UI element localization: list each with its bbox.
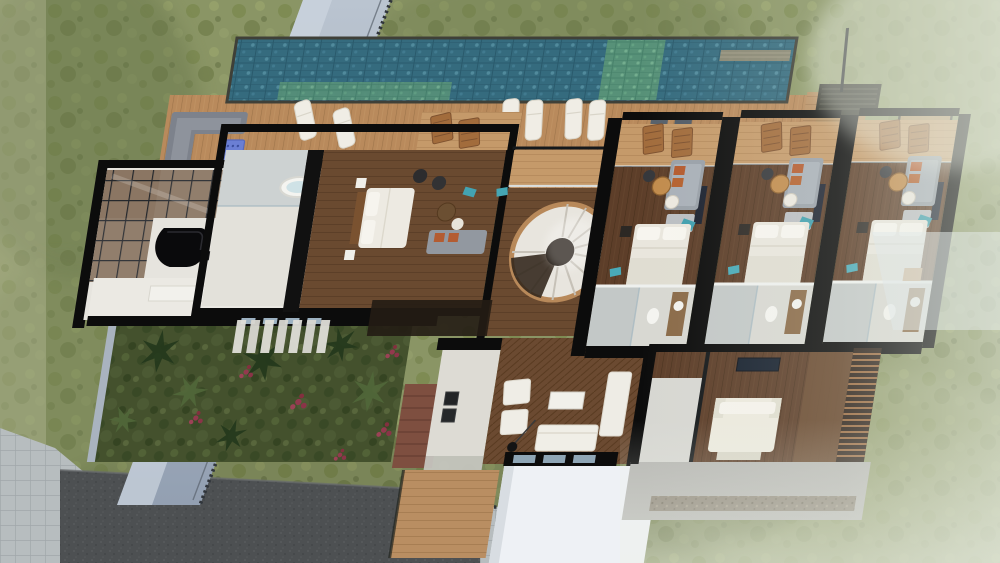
- sofa: [535, 425, 599, 451]
- bedside-table: [344, 250, 356, 260]
- coffee-table: [548, 392, 585, 409]
- villa-aerial-render: Aerial cutaway 3D render of a modern vil…: [0, 0, 1000, 563]
- window-glass: [543, 455, 566, 463]
- balcony-wood-chair-icon: [459, 118, 480, 149]
- sun-lounger: [525, 99, 543, 140]
- master-bed: [349, 188, 416, 248]
- baja-shelf: [277, 82, 452, 100]
- orange-cushion: [448, 233, 459, 242]
- orange-cushion: [434, 233, 445, 242]
- timber-steps: [390, 470, 500, 558]
- armchair: [500, 409, 528, 435]
- armchair: [503, 379, 531, 406]
- oven-stack: [444, 392, 459, 405]
- sun-lounger: [587, 100, 606, 141]
- window-glass: [513, 455, 536, 463]
- sun-lounger: [565, 98, 583, 140]
- understair-floor: [367, 300, 493, 336]
- garden-courtyard: [86, 320, 455, 468]
- window-glass: [573, 455, 596, 463]
- oven-stack: [441, 409, 456, 422]
- bedside-table: [355, 178, 367, 188]
- render-canvas: Aerial cutaway 3D render of a modern vil…: [0, 0, 1000, 563]
- bottom-right-haze: [620, 420, 1000, 563]
